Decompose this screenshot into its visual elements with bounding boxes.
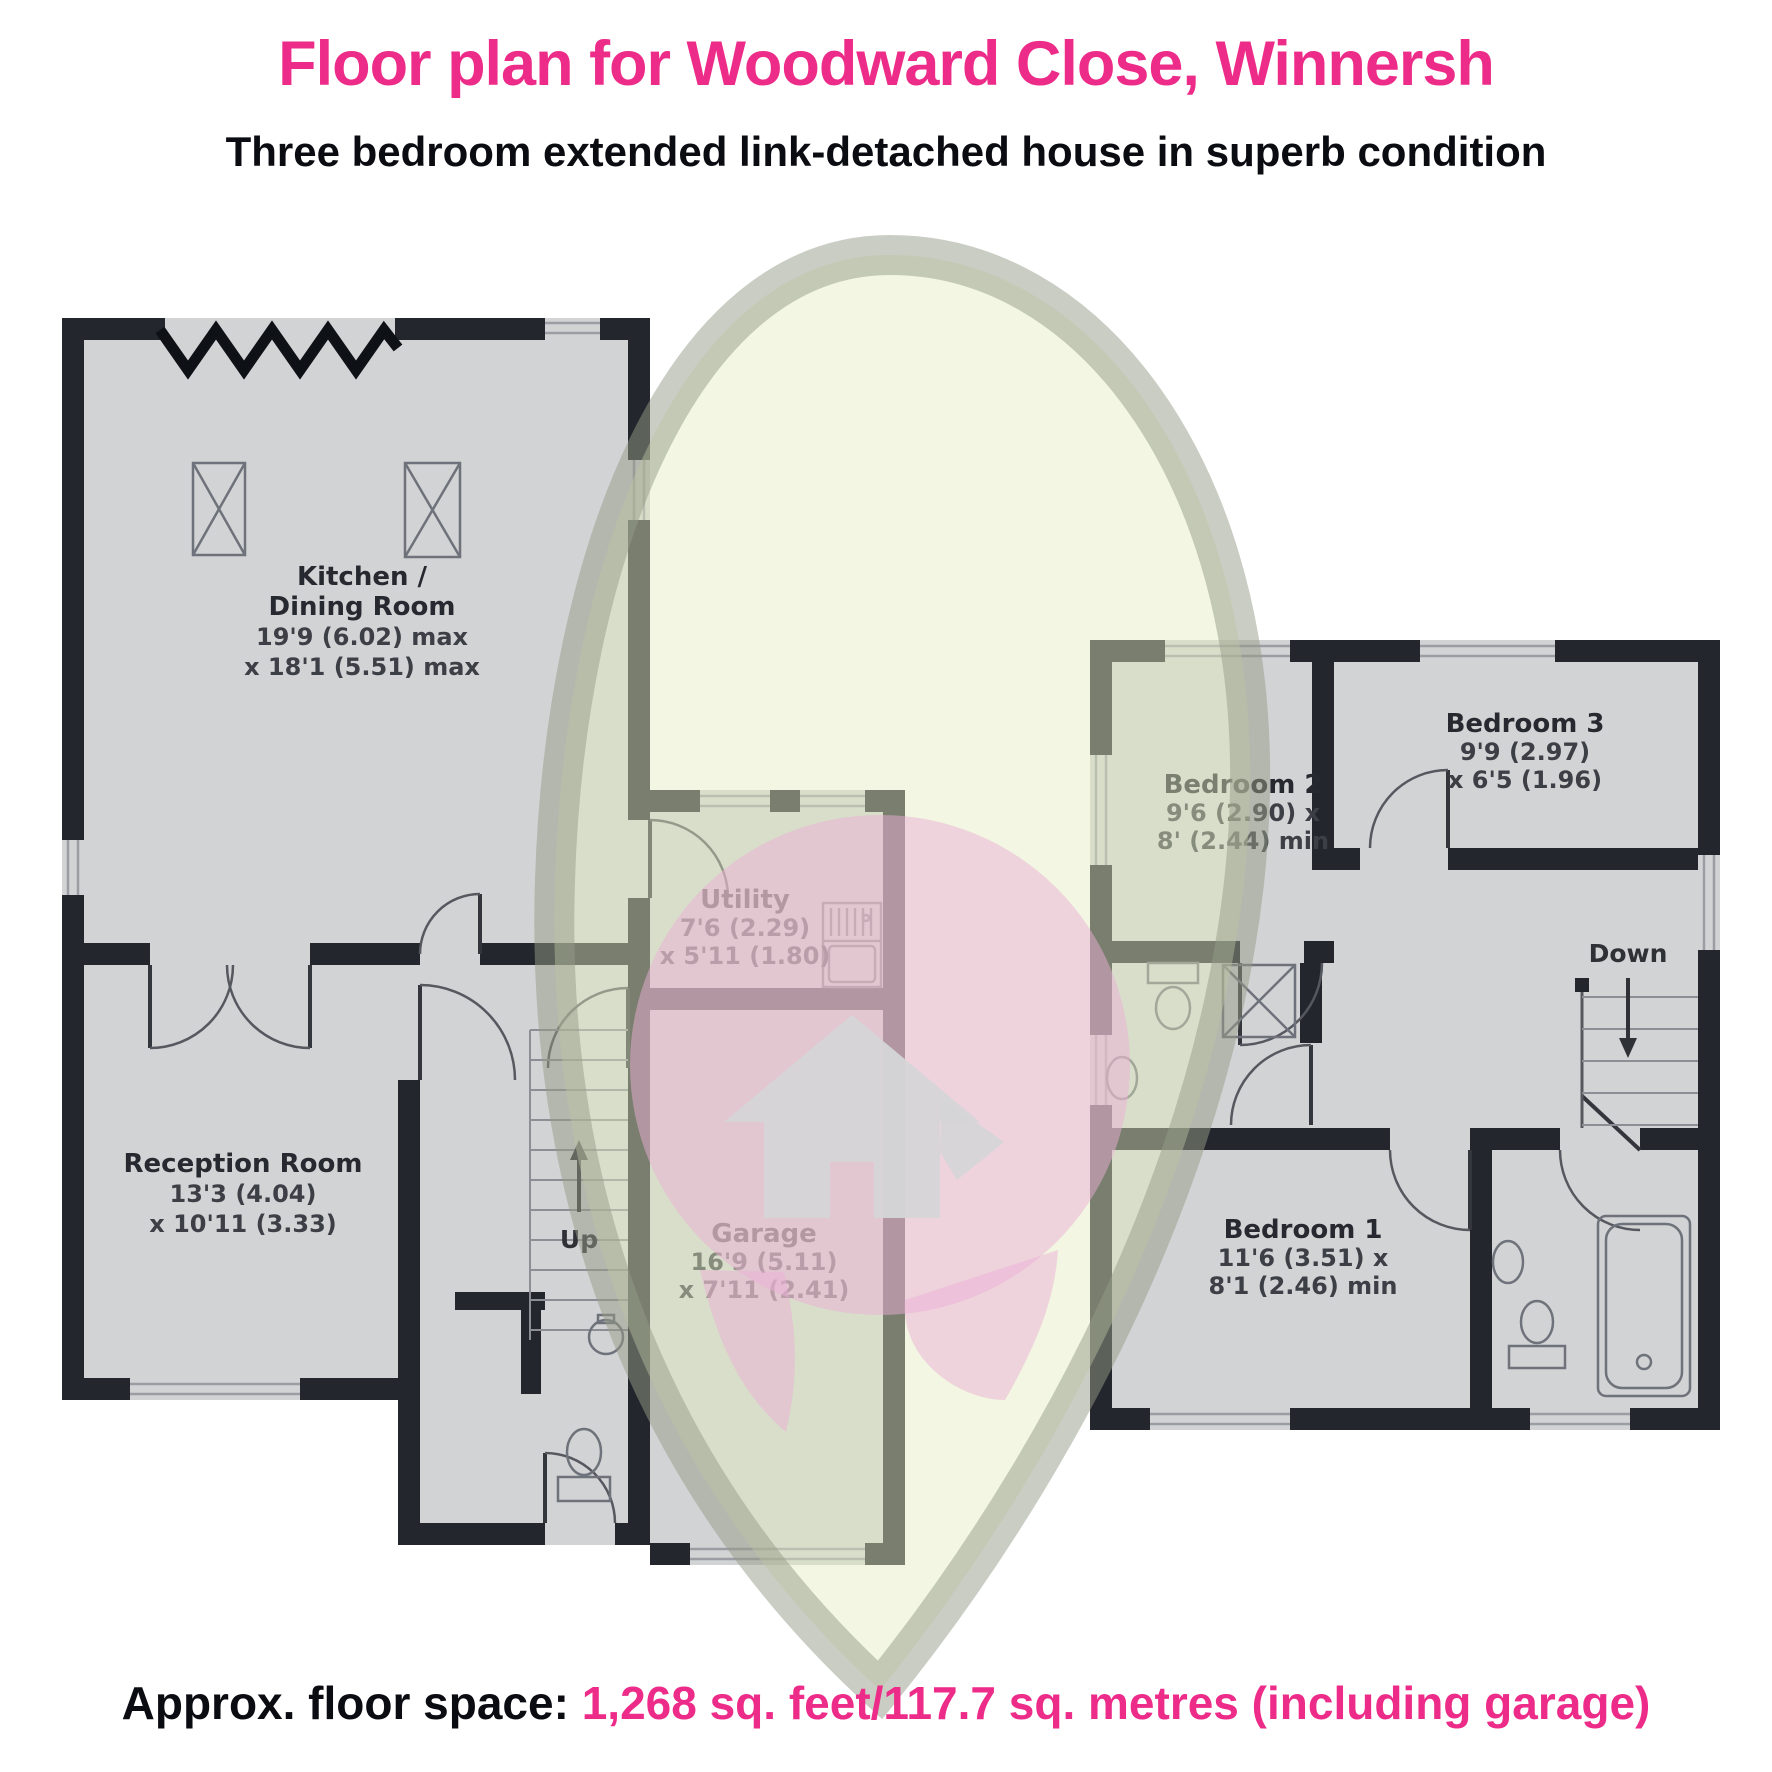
bedroom1-label: Bedroom 1	[1224, 1215, 1383, 1245]
kitchen-dimensions-line2: x 18'1 (5.51) max	[244, 653, 480, 681]
floorplan-page: Floor plan for Woodward Close, Winnersh …	[0, 0, 1772, 1772]
bedroom1-dimensions: 11'6 (3.51) x	[1218, 1244, 1389, 1272]
floor-space-value: 1,268 sq. feet/117.7 sq. metres (includi…	[582, 1677, 1651, 1729]
kitchen-dimensions: 19'9 (6.02) max	[256, 623, 469, 651]
kitchen-label-line2: Dining Room	[269, 592, 456, 622]
floor-space-summary: Approx. floor space: 1,268 sq. feet/117.…	[0, 1676, 1772, 1730]
bedroom1-dimensions-line2: 8'1 (2.46) min	[1209, 1272, 1398, 1300]
reception-dimensions: 13'3 (4.04)	[170, 1180, 317, 1208]
bedroom3-label: Bedroom 3	[1446, 709, 1605, 739]
down-label: Down	[1589, 939, 1668, 968]
floorplan-drawing: Up Kitchen / Dining Room	[0, 0, 1772, 1772]
kitchen-label: Kitchen /	[297, 562, 428, 592]
reception-label: Reception Room	[124, 1149, 363, 1179]
floor-space-label: Approx. floor space:	[122, 1677, 569, 1729]
bedroom3-dimensions-line2: x 6'5 (1.96)	[1448, 766, 1602, 794]
bedroom3-dimensions: 9'9 (2.97)	[1460, 738, 1590, 766]
reception-dimensions-line2: x 10'11 (3.33)	[149, 1210, 337, 1238]
